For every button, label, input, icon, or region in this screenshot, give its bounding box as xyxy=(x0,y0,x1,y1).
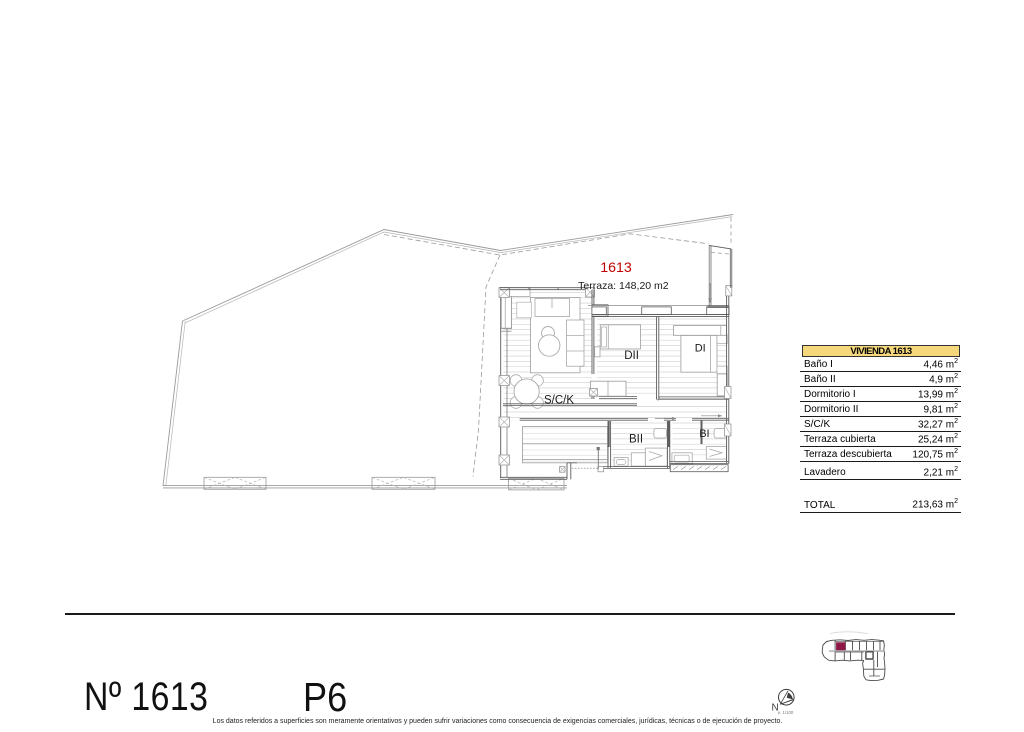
svg-text:BI: BI xyxy=(699,428,709,440)
svg-text:e. 1/100: e. 1/100 xyxy=(778,710,794,715)
svg-text:BII: BII xyxy=(629,434,643,446)
svg-text:Terraza: 148,20 m2: Terraza: 148,20 m2 xyxy=(578,280,669,292)
svg-text:DI: DI xyxy=(695,342,706,354)
svg-text:S/C/K: S/C/K xyxy=(544,394,574,406)
svg-text:1613: 1613 xyxy=(600,260,632,276)
svg-text:DII: DII xyxy=(624,350,639,362)
